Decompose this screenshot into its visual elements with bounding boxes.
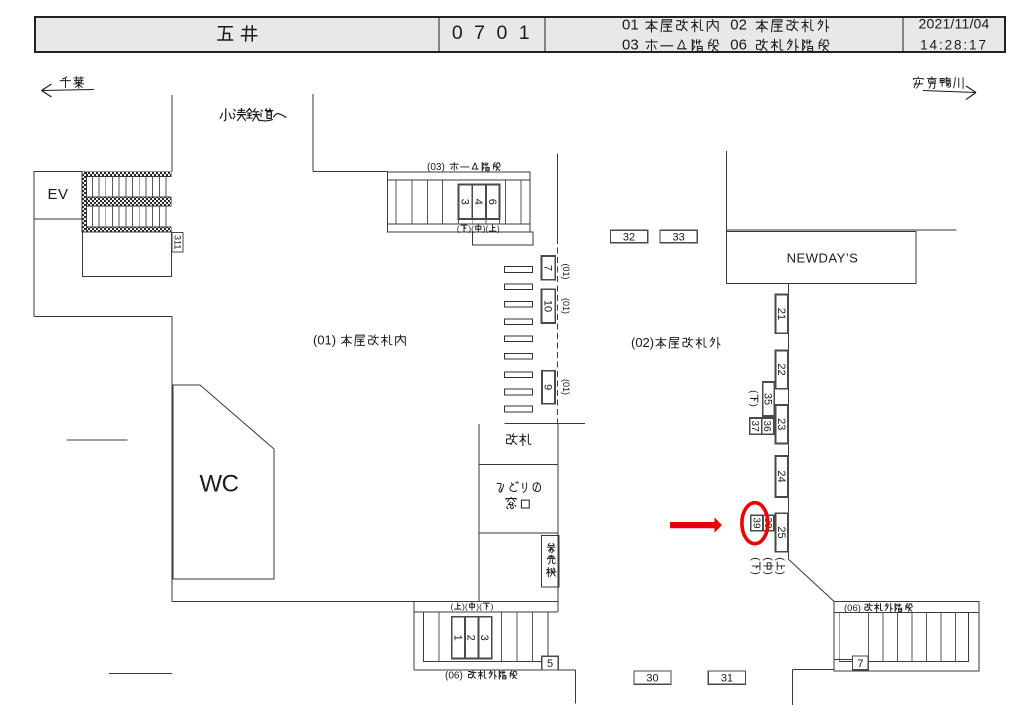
svg-text:3: 3: [458, 199, 470, 205]
svg-text:06: 06: [730, 36, 747, 53]
svg-text:(: (: [774, 557, 786, 561]
svg-text:(02): (02): [631, 335, 654, 350]
svg-text:(: (: [750, 557, 762, 561]
svg-text:24: 24: [775, 470, 787, 482]
svg-text:33: 33: [673, 231, 685, 243]
svg-text:03: 03: [622, 36, 639, 53]
svg-text:WC: WC: [200, 471, 239, 498]
svg-text:(01): (01): [561, 263, 571, 279]
svg-text:22: 22: [775, 363, 787, 375]
svg-text:2: 2: [465, 635, 477, 641]
svg-text:(: (: [748, 390, 759, 394]
svg-text:31: 31: [721, 673, 733, 685]
svg-text:7: 7: [474, 22, 485, 44]
svg-text:): ): [750, 571, 762, 575]
svg-text:(: (: [457, 223, 460, 233]
svg-text:01: 01: [622, 17, 639, 34]
svg-text:5: 5: [547, 658, 553, 670]
svg-text:1: 1: [519, 22, 530, 44]
svg-text:): ): [774, 571, 786, 575]
svg-text:14:28:17: 14:28:17: [920, 38, 988, 53]
svg-text:(: (: [762, 557, 774, 561]
svg-text:21: 21: [775, 308, 787, 320]
svg-text:1: 1: [451, 635, 463, 641]
svg-text:4: 4: [472, 199, 484, 205]
svg-text:36: 36: [761, 421, 772, 433]
svg-text:): ): [748, 404, 759, 407]
svg-text:(01): (01): [561, 298, 571, 314]
svg-text:3: 3: [478, 635, 490, 641]
svg-text:6: 6: [486, 199, 498, 205]
svg-text:0: 0: [452, 22, 463, 44]
svg-text:(: (: [451, 601, 454, 611]
svg-text:30: 30: [646, 673, 658, 685]
svg-text:(06): (06): [445, 670, 463, 681]
svg-text:2021/11/04: 2021/11/04: [918, 16, 989, 32]
svg-text:(: (: [479, 601, 482, 611]
svg-text:0: 0: [496, 22, 507, 44]
svg-text:25: 25: [775, 526, 787, 538]
svg-text:9: 9: [542, 384, 554, 390]
svg-text:02: 02: [730, 17, 747, 34]
svg-text:(01): (01): [561, 379, 571, 395]
svg-text:23: 23: [775, 418, 787, 430]
svg-text:32: 32: [623, 231, 635, 243]
svg-text:37: 37: [749, 421, 760, 433]
svg-text:(: (: [465, 601, 468, 611]
svg-text:39: 39: [750, 517, 761, 529]
svg-text:7: 7: [857, 658, 863, 670]
svg-text:35: 35: [762, 393, 774, 405]
svg-text:): ): [491, 601, 494, 611]
svg-text:EV: EV: [47, 186, 68, 203]
svg-text:311: 311: [172, 235, 182, 249]
svg-text:): ): [762, 571, 774, 575]
svg-text:7: 7: [541, 265, 553, 271]
svg-text:(01): (01): [313, 333, 336, 348]
svg-text:NEWDAY’S: NEWDAY’S: [787, 251, 859, 266]
svg-text:(06): (06): [844, 603, 861, 614]
svg-text:10: 10: [541, 300, 553, 312]
